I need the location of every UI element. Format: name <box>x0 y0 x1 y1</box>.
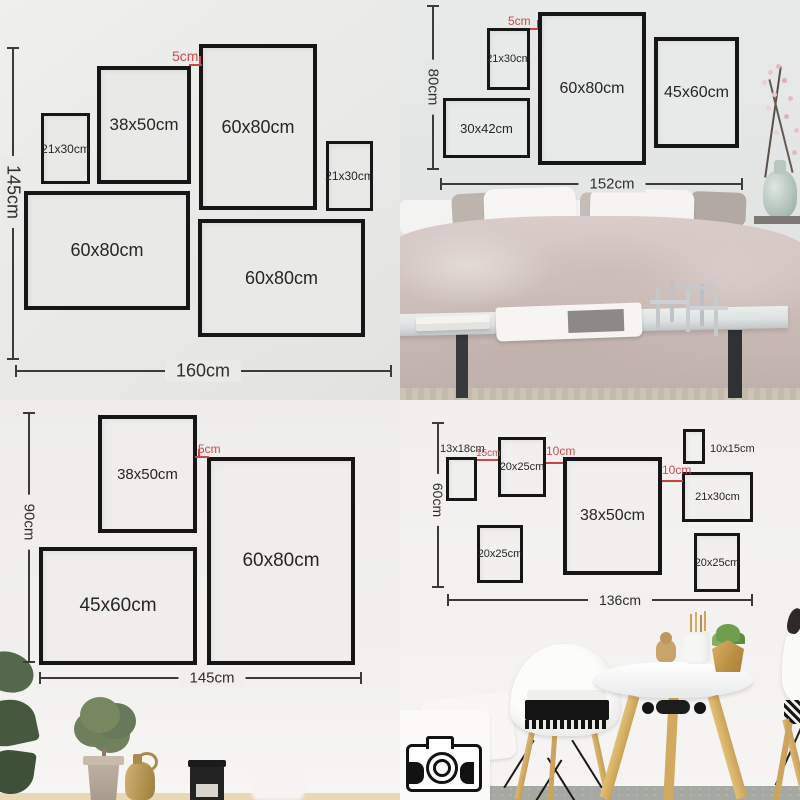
picture-frame: 21x30cm <box>326 141 373 211</box>
gap-tick <box>199 56 201 66</box>
branch-blossoms <box>768 70 773 75</box>
frame-size-label: 30x42cm <box>460 121 513 136</box>
frame-size-label: 38x50cm <box>110 115 179 135</box>
table-leg <box>708 695 748 800</box>
frame-size-label: 60x80cm <box>245 268 318 289</box>
frame-size-label: 45x60cm <box>79 595 156 617</box>
picture-frame: 38x50cm <box>563 457 662 575</box>
folded-blanket <box>525 700 609 720</box>
picture-frame: 30x42cm <box>443 98 530 158</box>
plant-leaf <box>0 645 39 699</box>
camera-print-top <box>426 736 454 749</box>
frame-size-label: 10x15cm <box>710 443 755 455</box>
picture-frame: 60x80cm <box>538 12 646 165</box>
frame-size-label: 20x25cm <box>500 461 545 473</box>
picture-frame: 45x60cm <box>654 37 739 148</box>
gap-line <box>546 462 563 464</box>
wall-width-dimension: 160cm <box>15 370 392 372</box>
wall-height-dimension: 90cm <box>28 412 30 663</box>
candle-jar-lid <box>188 760 226 767</box>
wall-height-dimension: 145cm <box>12 47 14 360</box>
picture-frame: 60x80cm <box>199 44 317 210</box>
picture-frame: 21x30cm <box>41 113 90 184</box>
frame-size-label: 38x50cm <box>580 507 645 525</box>
gap-measurement-label: 5cm <box>172 48 198 64</box>
frame-size-label: 21x30cm <box>325 169 374 183</box>
candlestick-arm <box>650 300 688 304</box>
glass-vase <box>763 170 797 218</box>
side-table <box>754 216 800 224</box>
candle-jar-label <box>196 784 218 797</box>
gap-measurement-label: 5cm <box>198 442 221 456</box>
wall-width-label: 145cm <box>178 670 245 687</box>
wall-height-dimension: 80cm <box>432 5 434 170</box>
frame-size-label: 60x80cm <box>70 240 143 261</box>
panel-bottom-right: 13x18cm 20x25cm 38x50cm 10x15cm 21x30cm … <box>400 400 800 800</box>
camera-print-side <box>460 762 474 784</box>
spray-bottle <box>125 762 155 800</box>
frame-size-label: 21x30cm <box>695 491 740 503</box>
wall-height-label: 90cm <box>21 495 38 550</box>
wall-width-dimension: 152cm <box>440 183 743 185</box>
picture-frame: 38x50cm <box>98 415 197 533</box>
gap-tick <box>198 449 200 457</box>
frame-size-label: 20x25cm <box>695 557 740 569</box>
camera-print-side <box>408 762 424 784</box>
plant-leaf <box>0 694 40 751</box>
picture-frame: 21x30cm <box>487 28 530 90</box>
wall-width-label: 136cm <box>588 592 652 608</box>
pencil-cup <box>684 632 710 664</box>
white-vase <box>252 750 304 800</box>
wire-plant <box>785 607 800 636</box>
picture-frame <box>446 457 477 501</box>
frame-size-label: 60x80cm <box>221 117 294 138</box>
wall-height-dimension: 60cm <box>437 422 439 588</box>
frame-size-label: 38x50cm <box>117 466 178 483</box>
picture-frame: 60x80cm <box>24 191 190 310</box>
gap-line <box>477 459 498 461</box>
panel-top-left: 21x30cm 38x50cm 60x80cm 21x30cm 60x80cm … <box>0 0 400 400</box>
picture-frame: 20x25cm <box>498 437 546 497</box>
frame-size-label: 20x25cm <box>478 548 523 560</box>
table-clamp-disc <box>642 702 654 714</box>
picture-frame: 38x50cm <box>97 66 191 184</box>
topiary-foliage <box>80 697 120 733</box>
candlestick-holder <box>656 288 660 330</box>
bench-leg <box>456 330 468 398</box>
folded-blanket-pattern <box>525 720 609 729</box>
gallery-wall-size-chart: 21x30cm 38x50cm 60x80cm 21x30cm 60x80cm … <box>0 0 800 800</box>
gap-measurement-label: 10cm <box>662 463 691 477</box>
glass-vase-neck <box>774 160 786 174</box>
terracotta-pot-rim <box>83 756 124 765</box>
picture-frame: 60x80cm <box>207 457 355 665</box>
open-book-photo <box>568 309 625 333</box>
frame-size-label: 21x30cm <box>486 53 531 65</box>
wall-width-dimension: 136cm <box>447 599 753 601</box>
camera-print-lens-inner <box>433 759 451 777</box>
picture-frame: 45x60cm <box>39 547 197 665</box>
panel-top-right: 5cm 21x30cm 60x80cm 45x60cm 30x42cm 80cm… <box>400 0 800 400</box>
spray-bottle-pump <box>133 754 142 764</box>
gap-measurement-label: 10cm <box>546 444 575 458</box>
picture-frame: 20x25cm <box>694 533 740 592</box>
panel-bottom-left: 38x50cm 60x80cm 45x60cm 5cm 90cm 145cm <box>0 400 400 800</box>
picture-frame: 60x80cm <box>198 219 365 337</box>
folded-blanket <box>527 690 607 700</box>
wall-height-label: 60cm <box>430 474 446 526</box>
table-clamp <box>656 700 690 714</box>
frame-size-label: 45x60cm <box>664 84 729 102</box>
wall-height-label: 145cm <box>3 156 24 228</box>
wall-width-label: 152cm <box>578 176 645 193</box>
succulent-plant <box>716 624 740 642</box>
frame-size-label: 60x80cm <box>242 550 319 572</box>
frame-size-label: 60x80cm <box>560 80 625 98</box>
gap-measurement-label: 5cm <box>508 14 531 28</box>
frame-size-label: 21x30cm <box>41 142 90 156</box>
wooden-toy-head <box>660 632 672 644</box>
gap-line <box>662 480 683 482</box>
picture-frame: 21x30cm <box>682 472 753 522</box>
gap-measurement-label: 15cm <box>476 448 500 459</box>
geometric-pot <box>712 640 744 672</box>
picture-frame: 20x25cm <box>477 525 523 583</box>
plant-leaf <box>0 747 37 797</box>
picture-frame <box>683 429 705 464</box>
bench-leg <box>728 330 742 398</box>
pencil-sticks <box>690 614 692 634</box>
wall-height-label: 80cm <box>425 60 442 115</box>
wall-width-label: 160cm <box>165 361 241 382</box>
book-stack <box>416 315 490 332</box>
wall-width-dimension: 145cm <box>39 677 362 679</box>
